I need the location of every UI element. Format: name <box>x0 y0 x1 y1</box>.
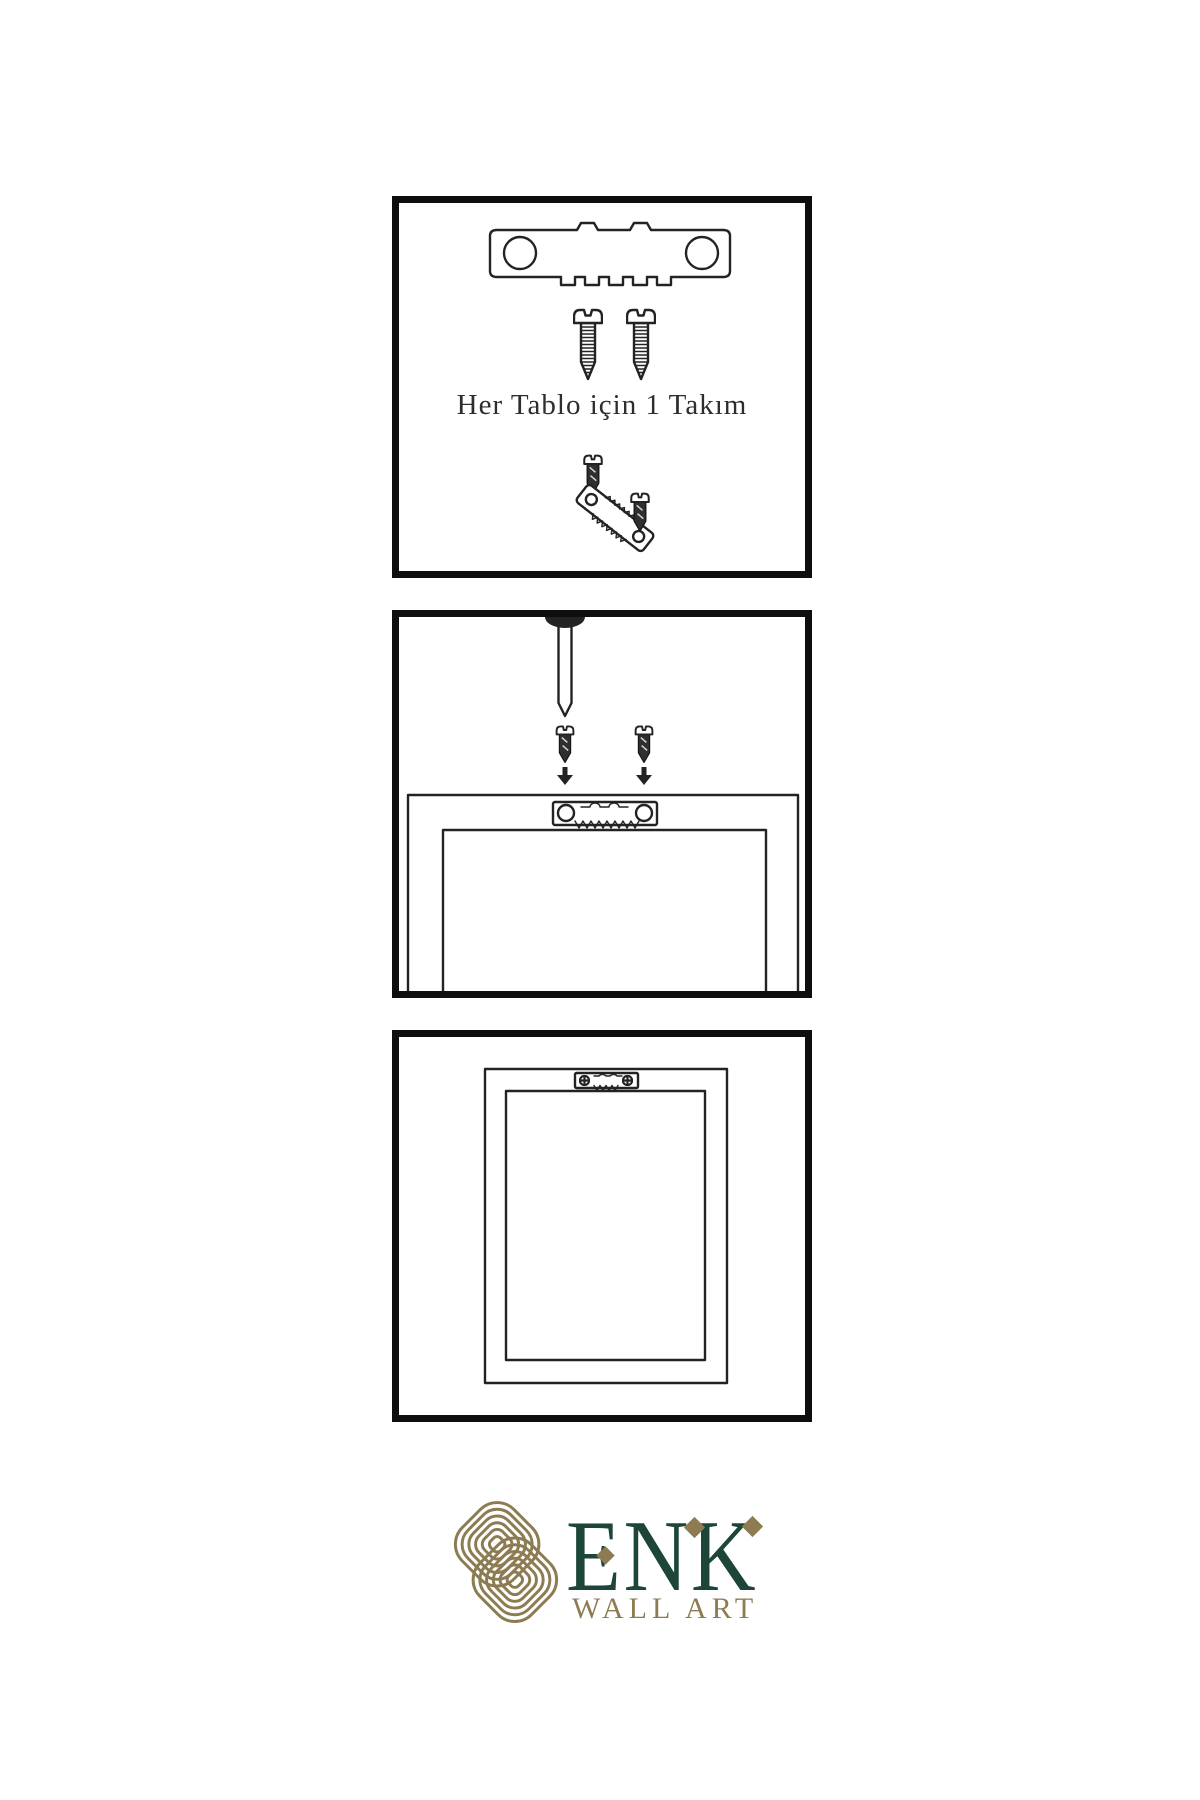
arrow-down-icon <box>636 767 652 785</box>
screw-icon <box>627 310 655 379</box>
brand-name: ENK <box>566 1506 758 1608</box>
brand-subtitle: WALL ART <box>572 1594 758 1624</box>
screw-icon <box>636 726 653 762</box>
diamond-accent-icon <box>742 1516 763 1537</box>
knot-coil-top <box>446 1498 549 1596</box>
hardware-kit-drawing <box>399 203 805 571</box>
mounted-frame-drawing <box>399 1037 805 1415</box>
arrow-down-icon <box>557 767 573 785</box>
diamond-accent-icon <box>684 1517 705 1538</box>
frame-back-icon <box>485 1069 727 1383</box>
tilted-hanger-with-screws-icon <box>573 456 657 556</box>
nail-icon <box>545 617 585 716</box>
sawtooth-hanger-icon <box>553 802 657 828</box>
sawtooth-hanger-icon <box>490 223 730 285</box>
instruction-sheet: Her Tablo için 1 Takım <box>0 0 1200 1800</box>
phillips-screw-icon <box>623 1076 632 1085</box>
panel-installation <box>392 610 812 998</box>
installation-drawing <box>399 617 805 991</box>
phillips-screw-icon <box>580 1076 589 1085</box>
mounted-sawtooth-hanger-icon <box>575 1073 638 1091</box>
diamond-accent-icon <box>596 1546 614 1564</box>
screw-icon <box>574 310 602 379</box>
panel-hardware-kit: Her Tablo için 1 Takım <box>392 196 812 578</box>
knot-coil-bottom <box>463 1528 566 1628</box>
screw-icon <box>557 726 574 762</box>
knot-emblem-icon <box>436 1498 576 1628</box>
panel-mounted-frame <box>392 1030 812 1422</box>
kit-caption: Her Tablo için 1 Takım <box>399 389 805 422</box>
